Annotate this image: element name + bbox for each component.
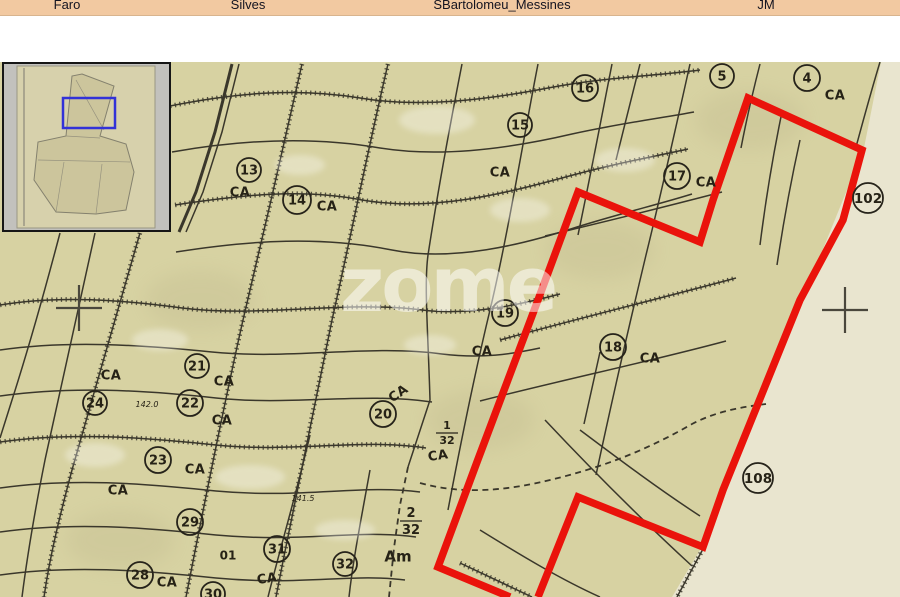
ca-label: CA [256, 570, 278, 588]
svg-text:30: 30 [204, 588, 222, 597]
ca-label: CA [825, 89, 846, 104]
ca-label: CA [214, 375, 235, 390]
ca-label: CA [185, 463, 206, 478]
svg-text:17: 17 [668, 170, 686, 185]
ca-label: CA [157, 576, 178, 591]
ca-label: CA [230, 186, 251, 201]
svg-text:21: 21 [188, 360, 206, 375]
svg-text:28: 28 [131, 569, 149, 584]
breadcrumb-bar: Faro Silves SBartolomeu_Messines JM [0, 0, 900, 16]
ca-label: CA [472, 345, 493, 360]
ca-label: CA [640, 352, 661, 367]
svg-text:20: 20 [374, 408, 392, 423]
breadcrumb-parish[interactable]: SBartolomeu_Messines [433, 0, 570, 13]
map-annotation: Am [384, 547, 411, 565]
ca-label: CA [101, 369, 122, 384]
svg-text:4: 4 [802, 72, 811, 87]
svg-text:2: 2 [406, 506, 415, 521]
cadastral-map-viewer: Faro Silves SBartolomeu_Messines JM 1314… [0, 0, 900, 597]
svg-text:32: 32 [402, 523, 420, 538]
ca-label: CA [696, 176, 717, 191]
svg-text:108: 108 [744, 471, 772, 487]
ca-label: CA [427, 447, 449, 465]
minimap-svg [4, 64, 169, 230]
svg-text:5: 5 [717, 70, 726, 85]
map-annotation: 141.5 [292, 494, 315, 503]
svg-text:32: 32 [439, 434, 454, 447]
svg-text:32: 32 [336, 558, 354, 573]
ca-label: CA [317, 200, 338, 215]
ca-label: CA [108, 484, 129, 499]
svg-text:13: 13 [240, 164, 258, 179]
breadcrumb-section[interactable]: JM [757, 0, 774, 13]
svg-text:14: 14 [288, 194, 306, 209]
map-annotation: 142.0 [136, 400, 159, 409]
svg-text:18: 18 [604, 341, 622, 356]
minimap-inset[interactable] [2, 62, 171, 232]
svg-text:102: 102 [854, 191, 882, 207]
ca-label: CA [490, 166, 511, 181]
svg-text:19: 19 [496, 307, 514, 322]
svg-text:31: 31 [268, 543, 286, 558]
svg-text:24: 24 [86, 397, 104, 412]
svg-text:1: 1 [443, 419, 451, 432]
svg-text:22: 22 [181, 397, 199, 412]
svg-text:29: 29 [181, 516, 199, 531]
breadcrumb-district[interactable]: Faro [54, 0, 81, 13]
svg-text:16: 16 [576, 82, 594, 97]
svg-text:15: 15 [511, 119, 529, 134]
map-annotation: 01 [220, 548, 237, 562]
ca-label: CA [212, 414, 233, 429]
svg-text:23: 23 [149, 454, 167, 469]
breadcrumb-municipality[interactable]: Silves [231, 0, 266, 13]
